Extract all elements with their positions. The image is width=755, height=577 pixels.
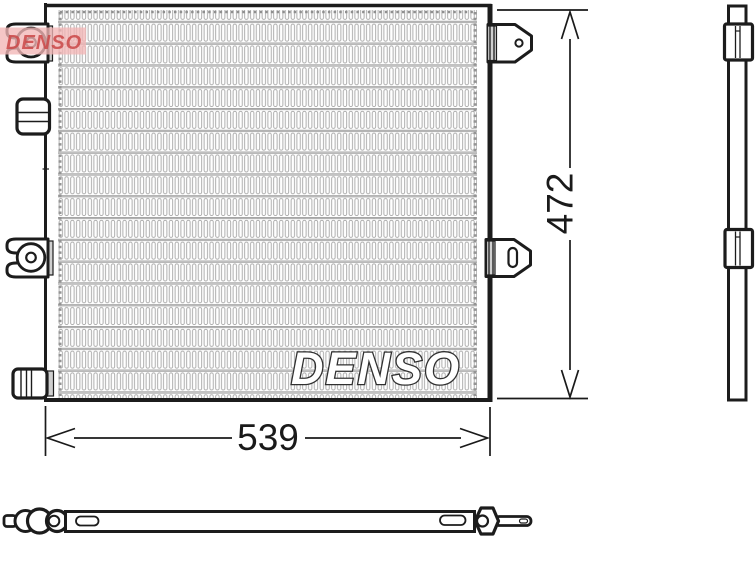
corner-watermark-text: DENSO	[6, 32, 82, 54]
side-fitting-mid	[725, 230, 753, 268]
pipe-fitting-upper-left	[17, 99, 50, 134]
fitting-body	[13, 369, 47, 398]
dimension-height: 472	[497, 10, 588, 399]
dimension-width-label: 539	[237, 417, 299, 458]
bottom-bar-slot-right	[440, 516, 466, 526]
condenser-technical-drawing: DENSO	[0, 0, 755, 577]
mount-tab-top-right	[488, 25, 532, 63]
pipe-collar-hole	[49, 516, 60, 527]
dimension-width: 539	[46, 406, 491, 458]
tab-slot	[509, 248, 518, 267]
bracket-bolt-hole	[26, 253, 36, 263]
fin-texture	[58, 10, 477, 398]
arrowhead-right	[460, 429, 488, 448]
arrowhead-up	[562, 12, 579, 39]
arrowhead-left	[48, 429, 76, 448]
fin-core	[58, 10, 477, 398]
tab-hinge-shade	[487, 241, 496, 275]
front-view: DENSO	[0, 3, 532, 402]
side-fitting-top	[725, 24, 753, 60]
side-view	[725, 6, 753, 400]
bottom-view	[4, 508, 531, 534]
drawing-canvas: DENSO	[0, 0, 755, 577]
pipe-fitting-bottom-left	[13, 369, 54, 398]
tab-hinge-shade	[488, 26, 497, 61]
corner-watermark: DENSO	[0, 28, 86, 55]
bottom-bar-slot-left	[76, 517, 99, 526]
mount-bracket-mid-left	[7, 239, 53, 277]
side-profile-bar	[729, 6, 747, 400]
brand-watermark: DENSO	[291, 343, 461, 394]
arrowhead-down	[562, 370, 579, 397]
tab-hole	[515, 39, 522, 46]
mount-tab-mid-right	[486, 240, 531, 277]
dimension-height-label: 472	[540, 173, 581, 235]
bottom-bar	[66, 512, 475, 532]
outlet-pipe-slot	[520, 519, 528, 523]
fitting-body	[17, 99, 50, 134]
hex-fitting-hole	[477, 516, 488, 527]
